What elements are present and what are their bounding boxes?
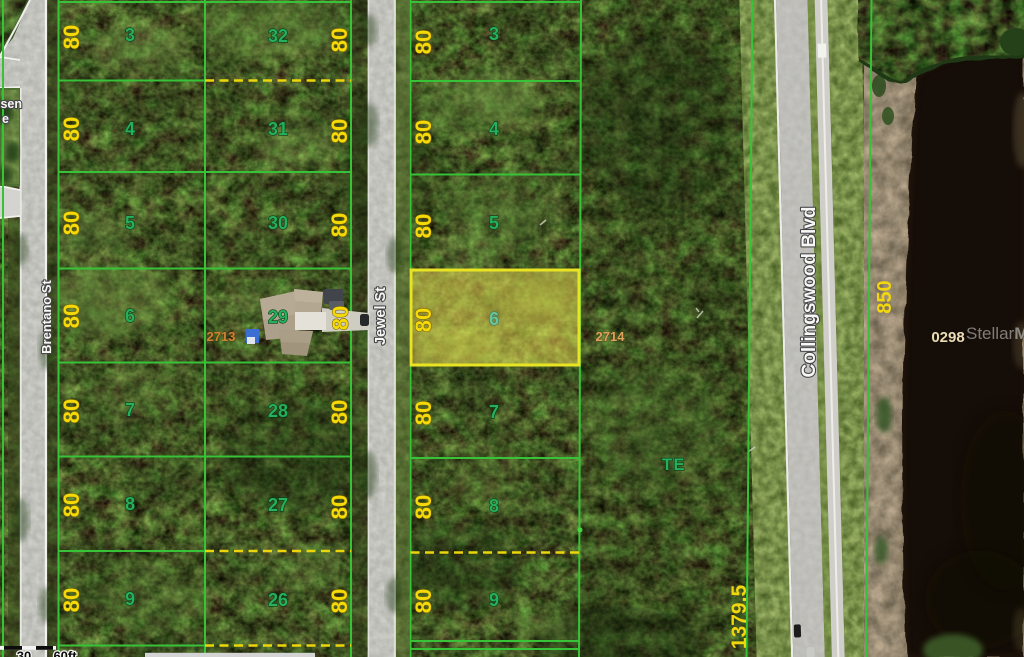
svg-text:80: 80 <box>327 213 352 237</box>
svg-text:80: 80 <box>327 495 352 519</box>
svg-text:7: 7 <box>125 400 135 420</box>
svg-text:80: 80 <box>327 589 352 613</box>
svg-text:80: 80 <box>59 211 84 235</box>
svg-text:80: 80 <box>327 400 352 424</box>
svg-text:4: 4 <box>125 119 135 139</box>
svg-text:80: 80 <box>411 495 436 519</box>
svg-text:29: 29 <box>268 307 288 327</box>
svg-text:9: 9 <box>489 590 499 610</box>
svg-text:80: 80 <box>327 119 352 143</box>
svg-text:6: 6 <box>489 309 499 329</box>
svg-text:80: 80 <box>411 30 436 54</box>
svg-text:2714: 2714 <box>596 329 626 344</box>
svg-text:6: 6 <box>125 306 135 326</box>
svg-text:80: 80 <box>59 493 84 517</box>
svg-text:32: 32 <box>268 26 288 46</box>
svg-text:1379.5: 1379.5 <box>728 585 751 650</box>
svg-text:850: 850 <box>874 280 896 313</box>
svg-text:60ft: 60ft <box>53 649 77 657</box>
svg-text:sen: sen <box>0 97 22 111</box>
svg-text:30: 30 <box>268 213 288 233</box>
svg-text:Collingswood Blvd: Collingswood Blvd <box>799 207 820 378</box>
svg-text:80: 80 <box>59 117 84 141</box>
svg-text:80: 80 <box>411 308 436 332</box>
svg-text:80: 80 <box>411 120 436 144</box>
svg-text:80: 80 <box>59 399 84 423</box>
svg-text:Brentano St: Brentano St <box>39 279 54 353</box>
svg-text:80: 80 <box>327 28 352 52</box>
svg-text:80: 80 <box>411 401 436 425</box>
svg-text:7: 7 <box>489 402 499 422</box>
svg-text:80: 80 <box>59 588 84 612</box>
svg-text:2713: 2713 <box>207 329 236 344</box>
svg-text:Jewel St: Jewel St <box>373 287 389 345</box>
svg-text:28: 28 <box>268 401 288 421</box>
svg-text:8: 8 <box>125 494 135 514</box>
svg-text:3: 3 <box>489 24 499 44</box>
svg-text:4: 4 <box>489 119 499 139</box>
svg-text:8: 8 <box>489 496 499 516</box>
svg-text:27: 27 <box>268 495 288 515</box>
svg-text:e: e <box>2 112 9 126</box>
svg-text:26: 26 <box>268 590 288 610</box>
svg-text:5: 5 <box>125 213 135 233</box>
svg-text:5: 5 <box>489 213 499 233</box>
svg-text:80: 80 <box>59 25 84 49</box>
svg-text:80: 80 <box>59 304 84 328</box>
svg-text:80: 80 <box>328 306 353 330</box>
svg-text:0298: 0298 <box>931 329 964 346</box>
svg-text:30: 30 <box>17 649 31 657</box>
svg-text:9: 9 <box>125 589 135 609</box>
svg-text:3: 3 <box>125 25 135 45</box>
svg-text:31: 31 <box>268 119 288 139</box>
svg-text:TE: TE <box>662 456 686 474</box>
svg-text:80: 80 <box>411 589 436 613</box>
svg-text:StellarMLS: StellarMLS <box>966 324 1024 343</box>
svg-text:80: 80 <box>411 214 436 238</box>
